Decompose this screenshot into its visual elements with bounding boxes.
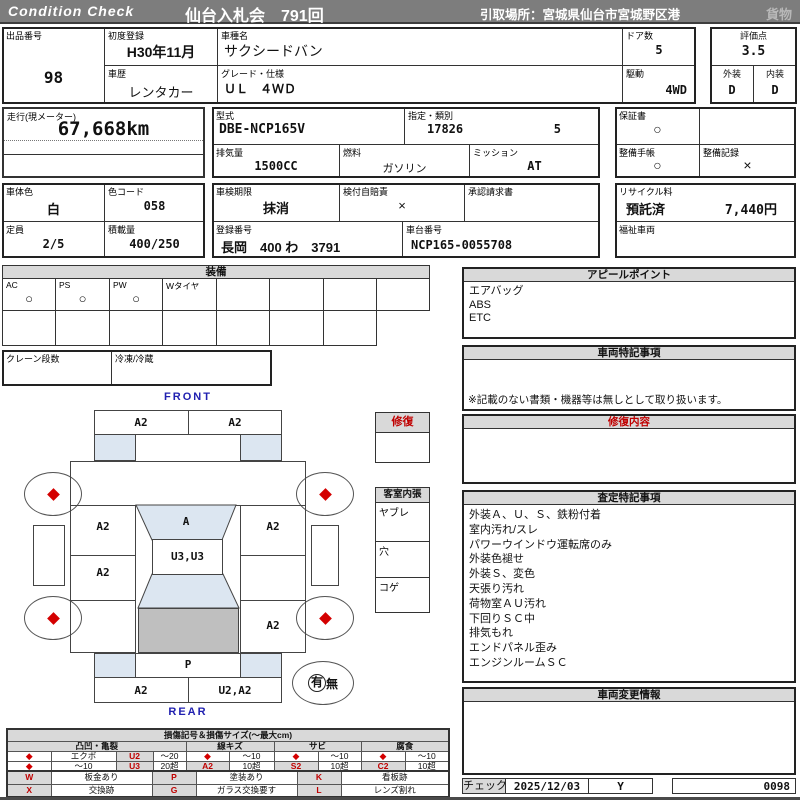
rear-bumper-right-mark: U2,A2: [188, 684, 282, 697]
drive-label: 駆動: [626, 67, 644, 80]
assessment-item: 排気もれ: [469, 626, 789, 641]
maintenance-book-value: ○: [616, 157, 699, 173]
equipment-cell-empty: [376, 278, 430, 311]
welfare-label: 福祉車両: [619, 223, 655, 236]
model-code-label: 型式: [216, 109, 234, 122]
doors-label: ドア数: [626, 29, 653, 42]
odometer-divider-solid: [4, 154, 203, 155]
mark-code-l: L: [297, 784, 341, 797]
legend-cell: 〜10: [318, 752, 361, 762]
capacity-value: 2/5: [3, 237, 104, 251]
fridge-cell: 冷凍/冷蔵: [111, 350, 272, 386]
recycle-cell: リサイクル料 預託済 7,440円: [615, 183, 796, 222]
diamond-icon: ◆: [7, 752, 51, 762]
equipment-row2-cell: [162, 310, 217, 346]
legend-cell: 〜10: [229, 752, 274, 762]
mission-value: AT: [470, 159, 599, 173]
chassis-label: 車台番号: [406, 223, 442, 236]
cabin-row-tear: ヤブレ: [376, 503, 429, 541]
appeal-panel: アピールポイント エアバッグ ABS ETC: [462, 267, 796, 339]
grade-label: グレード・仕様: [221, 67, 284, 80]
assessment-panel: 査定特記事項 外装Ａ、Ｕ、Ｓ、鉄粉付着 室内汚れ/スレ パワーウインドウ運転席の…: [462, 490, 796, 683]
approval-label: 承認請求書: [468, 185, 513, 198]
category-badge: 貨物: [766, 4, 792, 23]
lot-number-value: 98: [3, 68, 104, 87]
assessment-item: 天張り汚れ: [469, 582, 789, 597]
inspection-label: 車検期限: [216, 185, 252, 198]
warranty-cell: 保証書 ○: [615, 107, 700, 145]
mark-desc: レンズ割れ: [341, 784, 449, 797]
rear-window-shape: [138, 574, 239, 608]
cabin-lining-box: 客室内張 ヤブレ 穴 コゲ: [375, 487, 430, 613]
equipment-value-ps: ○: [56, 291, 109, 306]
rear-right-lamp: [240, 653, 282, 678]
odometer-divider-dotted: [4, 140, 203, 141]
maintenance-book-cell: 整備手帳 ○: [615, 144, 700, 178]
assessment-item: 外装色褪せ: [469, 552, 789, 567]
interior-value: D: [754, 83, 796, 97]
cabin-row-burn: コゲ: [376, 577, 429, 613]
grade-cell: グレード・仕様 ＵＬ ４ＷＤ: [217, 65, 623, 104]
load-label: 積載量: [108, 223, 135, 236]
vehicle-changes-header: 車両変更情報: [464, 689, 794, 702]
score-cell: 評価点 3.5: [710, 27, 797, 66]
mark-code-w: W: [7, 771, 51, 784]
equipment-row2-cell: [55, 310, 110, 346]
color-code-cell: 色コード 058: [104, 183, 205, 222]
chassis-cell: 車台番号 NCP165-0055708: [402, 221, 600, 258]
check-date-cell: 2025/12/03: [505, 778, 589, 794]
inspection-value: 抹消: [213, 198, 339, 217]
displacement-label: 排気量: [216, 146, 243, 159]
legend-cell: 〜20: [153, 752, 186, 762]
equipment-label-ac: AC: [6, 280, 18, 290]
diamond-icon: ◆: [274, 752, 318, 762]
drive-cell: 駆動 4WD: [622, 65, 696, 104]
insurance-cell: 検付自賠責 ×: [339, 183, 465, 222]
grade-value: ＵＬ ４ＷＤ: [224, 80, 296, 97]
assessment-item: 室内汚れ/スレ: [469, 523, 789, 538]
first-reg-label: 初度登録: [108, 29, 144, 42]
legend-code-u2: U2: [116, 752, 153, 762]
exterior-label: 外装: [711, 67, 753, 80]
body-color-value: 白: [3, 199, 104, 218]
assessment-item: 下回りＳＣ中: [469, 612, 789, 627]
model-name-value: サクシードバン: [224, 41, 323, 61]
maintenance-record-cell: 整備記録 ×: [699, 144, 796, 178]
windshield-mark: A: [136, 515, 236, 528]
reg-no-value: 長岡 400 わ 3791: [221, 237, 340, 256]
appeal-item: エアバッグ: [469, 285, 789, 299]
damage-legend-table: 損傷記号＆損傷サイズ(〜最大cm) 凸凹・亀裂 線キズ サビ 腐食 ◆ エクボ …: [6, 728, 450, 773]
assessment-item: パワーウインドウ運転席のみ: [469, 538, 789, 553]
legend-group-dent: 凸凹・亀裂: [7, 742, 186, 752]
class-sub-value: 5: [554, 122, 561, 136]
displacement-value: 1500CC: [213, 159, 339, 173]
appeal-item: ETC: [469, 312, 789, 326]
auction-title: 仙台入札会 791回: [185, 2, 324, 26]
model-name-cell: 車種名 サクシードバン: [217, 27, 623, 66]
model-code-cell: 型式 DBE-NCP165V: [212, 107, 405, 145]
legend-group-scratch: 線キズ: [186, 742, 274, 752]
equipment-value-ac: ○: [3, 291, 55, 306]
mark-legend-table: W 板金あり P 塗装あり K 看板跡 X 交換跡 G ガラス交換要す L レン…: [6, 770, 450, 798]
equipment-header: 装備: [2, 265, 430, 279]
equipment-label-pw: PW: [113, 280, 127, 290]
equipment-label-wtire: Wタイヤ: [166, 280, 199, 292]
appeal-header: アピールポイント: [464, 269, 794, 282]
fuel-label: 燃料: [343, 146, 361, 159]
vehicle-notes-footnote: ※記載のない書類・機器等は無しとして取り扱います。: [468, 392, 727, 407]
mark-desc: ガラス交換要す: [196, 784, 297, 797]
check-inspector-cell: Y: [588, 778, 653, 794]
interior-label: 内装: [754, 67, 796, 80]
maintenance-record-value: ×: [700, 157, 795, 173]
recycle-label: リサイクル料: [619, 185, 673, 198]
fuel-cell: 燃料 ガソリン: [339, 144, 470, 178]
sheet-number-cell: 0098: [672, 778, 796, 794]
tailgate-panel: [138, 608, 239, 653]
equipment-cell-ps: PS ○: [55, 278, 110, 311]
crane-label: クレーン段数: [6, 352, 60, 365]
load-value: 400/250: [105, 237, 204, 251]
first-reg-value: H30年11月: [105, 42, 217, 62]
lot-number-cell: 出品番号 98: [2, 27, 105, 104]
mark-code-p: P: [152, 771, 196, 784]
mark-code-x: X: [7, 784, 51, 797]
diamond-icon: ◆: [361, 752, 405, 762]
warranty-empty-cell: [699, 107, 796, 145]
insurance-value: ×: [340, 198, 464, 213]
odometer-value: 67,668km: [4, 118, 203, 140]
tailgate-mark: P: [136, 658, 240, 671]
cabin-row-hole-label: 穴: [379, 543, 389, 558]
legend-title: 損傷記号＆損傷サイズ(〜最大cm): [7, 729, 449, 742]
exterior-grade-cell: 外装 D: [710, 65, 754, 104]
mark-desc: 板金あり: [51, 771, 152, 784]
mark-desc: 塗装あり: [196, 771, 297, 784]
diamond-icon: ◆: [186, 752, 229, 762]
recycle-status-value: 預託済: [626, 199, 665, 218]
vehicle-notes-header: 車両特記事項: [464, 347, 794, 360]
equipment-label-ps: PS: [59, 280, 70, 290]
equipment-cell-empty: [323, 278, 377, 311]
spare-tire-indicator: 有 無: [292, 661, 354, 705]
welfare-cell: 福祉車両: [615, 221, 796, 258]
doors-cell: ドア数 5: [622, 27, 696, 66]
repair-detail-header: 修復内容: [464, 416, 794, 429]
assessment-item: エンドパネル歪み: [469, 641, 789, 656]
equipment-cell-pw: PW ○: [109, 278, 163, 311]
appeal-item: ABS: [469, 299, 789, 313]
lot-number-label: 出品番号: [6, 29, 42, 42]
history-label: 車歴: [108, 67, 126, 80]
equipment-row2-cell: [269, 310, 324, 346]
equipment-row2-cell: [323, 310, 377, 346]
recycle-fee-value: 7,440円: [725, 199, 777, 218]
check-label-cell: チェック: [462, 778, 506, 794]
score-label: 評価点: [711, 29, 796, 42]
legend-group-rust: サビ: [274, 742, 361, 752]
cabin-row-tear-label: ヤブレ: [379, 504, 409, 519]
equipment-cell-empty: [269, 278, 324, 311]
legend-cell: 〜10: [405, 752, 449, 762]
chassis-value: NCP165-0055708: [411, 238, 512, 252]
fuel-value: ガソリン: [340, 160, 469, 176]
cabin-row-hole: 穴: [376, 541, 429, 577]
fridge-label: 冷凍/冷蔵: [115, 352, 154, 365]
cabin-lining-header: 客室内張: [376, 488, 429, 503]
equipment-row2-cell: [2, 310, 56, 346]
capacity-cell: 定員 2/5: [2, 221, 105, 258]
mark-code-k: K: [297, 771, 341, 784]
equipment-cell-ac: AC ○: [2, 278, 56, 311]
color-code-value: 058: [105, 199, 204, 213]
mission-cell: ミッション AT: [469, 144, 600, 178]
load-cell: 積載量 400/250: [104, 221, 205, 258]
exterior-value: D: [711, 83, 753, 97]
rear-label: REAR: [148, 706, 228, 718]
spare-yes-circled: 有: [308, 674, 326, 692]
crane-cell: クレーン段数: [2, 350, 112, 386]
insurance-label: 検付自賠責: [343, 185, 388, 198]
assessment-item: 外装Ｓ、変色: [469, 567, 789, 582]
approval-cell: 承認請求書: [464, 183, 600, 222]
model-code-value: DBE-NCP165V: [219, 122, 305, 137]
equipment-value-pw: ○: [110, 291, 162, 306]
interior-grade-cell: 内装 D: [753, 65, 797, 104]
inspection-cell: 車検期限 抹消: [212, 183, 340, 222]
class-cell: 指定・類別 17826 5: [404, 107, 600, 145]
reg-no-label: 登録番号: [216, 223, 252, 236]
roof-mark: U3,U3: [152, 550, 223, 563]
repair-mini-box: 修復: [375, 412, 430, 463]
rear-bumper-left-mark: A2: [94, 684, 188, 697]
repair-mini-header: 修復: [376, 413, 429, 433]
legend-group-corrosion: 腐食: [361, 742, 449, 752]
header-bar: Condition Check 仙台入札会 791回 引取場所：宮城県仙台市宮城…: [0, 0, 800, 24]
assessment-header: 査定特記事項: [464, 492, 794, 505]
warranty-value: ○: [616, 121, 699, 137]
assessment-item: 荷物室ＡＵ汚れ: [469, 597, 789, 612]
cabin-row-burn-label: コゲ: [379, 579, 399, 594]
legend-cell: エクボ: [51, 752, 116, 762]
mark-desc: 看板跡: [341, 771, 449, 784]
reg-no-cell: 登録番号 長岡 400 わ 3791: [212, 221, 403, 258]
spare-no: 無: [326, 675, 338, 692]
vehicle-changes-panel: 車両変更情報: [462, 687, 796, 775]
history-cell: 車歴 レンタカー: [104, 65, 218, 104]
vehicle-notes-panel: 車両特記事項 ※記載のない書類・機器等は無しとして取り扱います。: [462, 345, 796, 411]
capacity-label: 定員: [6, 223, 24, 236]
score-value: 3.5: [711, 44, 796, 59]
mark-code-g: G: [152, 784, 196, 797]
class-label: 指定・類別: [408, 109, 453, 122]
history-value: レンタカー: [105, 82, 217, 101]
drive-value: 4WD: [665, 83, 687, 97]
equipment-cell-empty: [216, 278, 270, 311]
assessment-item: エンジンルームＳＣ: [469, 656, 789, 671]
equipment-cell-wtire: Wタイヤ: [162, 278, 217, 311]
equipment-row2-cell: [109, 310, 163, 346]
color-code-label: 色コード: [108, 185, 144, 198]
pickup-location: 引取場所：宮城県仙台市宮城野区港: [480, 4, 680, 23]
first-reg-cell: 初度登録 H30年11月: [104, 27, 218, 66]
mark-desc: 交換跡: [51, 784, 152, 797]
doors-value: 5: [623, 43, 695, 57]
assessment-item: 外装Ａ、Ｕ、Ｓ、鉄粉付着: [469, 508, 789, 523]
displacement-cell: 排気量 1500CC: [212, 144, 340, 178]
class-no-value: 17826: [427, 122, 463, 136]
repair-detail-panel: 修復内容: [462, 414, 796, 484]
mission-label: ミッション: [473, 146, 518, 159]
body-color-label: 車体色: [6, 185, 33, 198]
odometer-cell: 走行(現メーター) 67,668km: [2, 107, 205, 178]
rear-left-lamp: [94, 653, 136, 678]
body-color-cell: 車体色 白: [2, 183, 105, 222]
brand-title: Condition Check: [8, 3, 134, 19]
equipment-row2-cell: [216, 310, 270, 346]
condition-check-sheet: Condition Check 仙台入札会 791回 引取場所：宮城県仙台市宮城…: [0, 0, 800, 800]
